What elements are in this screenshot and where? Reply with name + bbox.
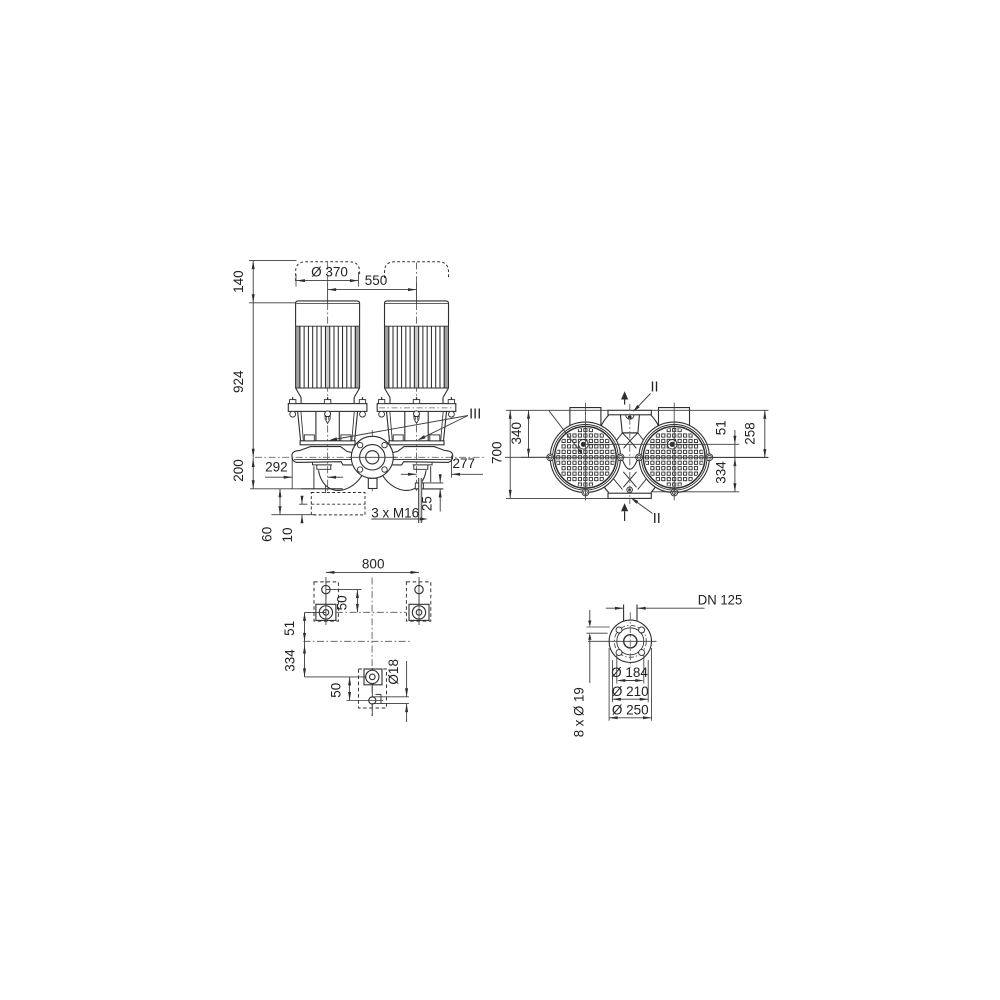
svg-text:II: II — [653, 511, 661, 527]
svg-text:Ø 184: Ø 184 — [611, 665, 648, 680]
svg-text:200: 200 — [231, 459, 246, 482]
svg-text:258: 258 — [743, 422, 758, 445]
svg-text:334: 334 — [283, 649, 298, 672]
svg-text:25: 25 — [420, 496, 435, 511]
svg-text:800: 800 — [362, 556, 385, 571]
svg-text:Ø 210: Ø 210 — [612, 684, 649, 699]
svg-text:340: 340 — [509, 422, 524, 445]
svg-text:334: 334 — [714, 461, 729, 484]
svg-text:140: 140 — [231, 270, 246, 293]
svg-text:10: 10 — [280, 527, 295, 542]
svg-text:Ø 250: Ø 250 — [612, 702, 649, 717]
svg-text:8 x Ø 19: 8 x Ø 19 — [571, 687, 586, 737]
svg-text:II: II — [650, 380, 658, 396]
svg-text:50: 50 — [328, 683, 343, 698]
svg-text:51: 51 — [714, 420, 729, 435]
svg-text:Ø18: Ø18 — [386, 659, 401, 685]
svg-text:DN 125: DN 125 — [698, 593, 743, 608]
svg-text:51: 51 — [282, 621, 297, 636]
svg-text:Ø 370: Ø 370 — [311, 264, 348, 279]
svg-text:50: 50 — [334, 595, 349, 610]
svg-text:292: 292 — [265, 459, 288, 474]
svg-text:3 x M16: 3 x M16 — [371, 506, 419, 521]
svg-text:700: 700 — [490, 441, 505, 464]
svg-text:60: 60 — [260, 527, 275, 542]
svg-text:277: 277 — [453, 456, 476, 471]
svg-text:924: 924 — [231, 370, 246, 393]
svg-text:550: 550 — [365, 273, 388, 288]
svg-text:III: III — [469, 407, 481, 423]
